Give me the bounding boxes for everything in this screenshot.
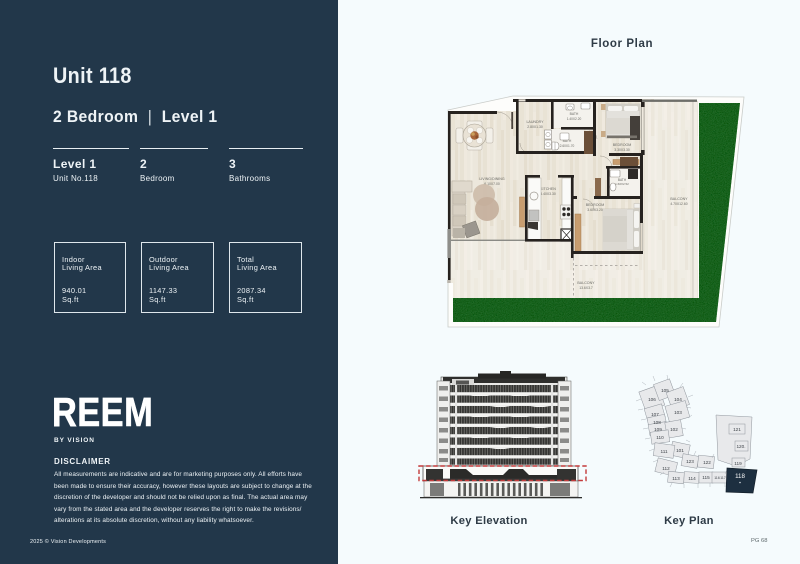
svg-text:115: 115 <box>702 475 710 480</box>
svg-text:13.6X3.7: 13.6X3.7 <box>579 286 593 290</box>
svg-text:108: 108 <box>653 420 661 425</box>
svg-text:LAUNDRY: LAUNDRY <box>526 120 544 124</box>
svg-text:3.40X3.30: 3.40X3.30 <box>540 192 556 196</box>
svg-text:3.60X3.20: 3.60X3.20 <box>587 208 603 212</box>
svg-text:4.70X12.60: 4.70X12.60 <box>670 202 687 206</box>
svg-text:107: 107 <box>651 412 659 417</box>
svg-text:111: 111 <box>660 449 668 454</box>
svg-text:2.80X1.30: 2.80X1.30 <box>527 125 543 129</box>
svg-text:3.30X3.30: 3.30X3.30 <box>614 148 630 152</box>
svg-text:123: 123 <box>686 459 694 464</box>
svg-text:116: 116 <box>714 476 720 480</box>
svg-text:BALCONY: BALCONY <box>670 197 688 201</box>
svg-text:LIVING/DINING: LIVING/DINING <box>479 177 505 181</box>
svg-text:2.60X1.70: 2.60X1.70 <box>560 144 575 148</box>
svg-text:BEDROOM: BEDROOM <box>613 143 632 147</box>
svg-text:105: 105 <box>661 388 669 393</box>
svg-text:114: 114 <box>688 476 696 481</box>
svg-text:117: 117 <box>720 476 726 480</box>
svg-text:BEDROOM: BEDROOM <box>586 203 605 207</box>
svg-text:106: 106 <box>648 397 656 402</box>
svg-text:110: 110 <box>656 435 664 440</box>
svg-text:104: 104 <box>674 397 682 402</box>
svg-text:121: 121 <box>733 427 741 432</box>
svg-text:1.60X2.52: 1.60X2.52 <box>615 182 629 186</box>
svg-text:112: 112 <box>662 466 670 471</box>
svg-text:119: 119 <box>734 461 742 466</box>
svg-text:113: 113 <box>672 476 680 481</box>
svg-text:BALCONY: BALCONY <box>577 281 595 285</box>
svg-text:109: 109 <box>654 427 662 432</box>
svg-text:122: 122 <box>703 460 711 465</box>
svg-text:KITCHEN: KITCHEN <box>540 187 556 191</box>
svg-text:BATH: BATH <box>570 112 579 116</box>
svg-text:1.40X2.20: 1.40X2.20 <box>567 117 582 121</box>
svg-text:103: 103 <box>674 410 682 415</box>
svg-text:102: 102 <box>670 427 678 432</box>
svg-text:120.: 120. <box>736 444 745 449</box>
svg-text:118: 118 <box>735 473 745 480</box>
svg-text:101: 101 <box>676 448 684 453</box>
